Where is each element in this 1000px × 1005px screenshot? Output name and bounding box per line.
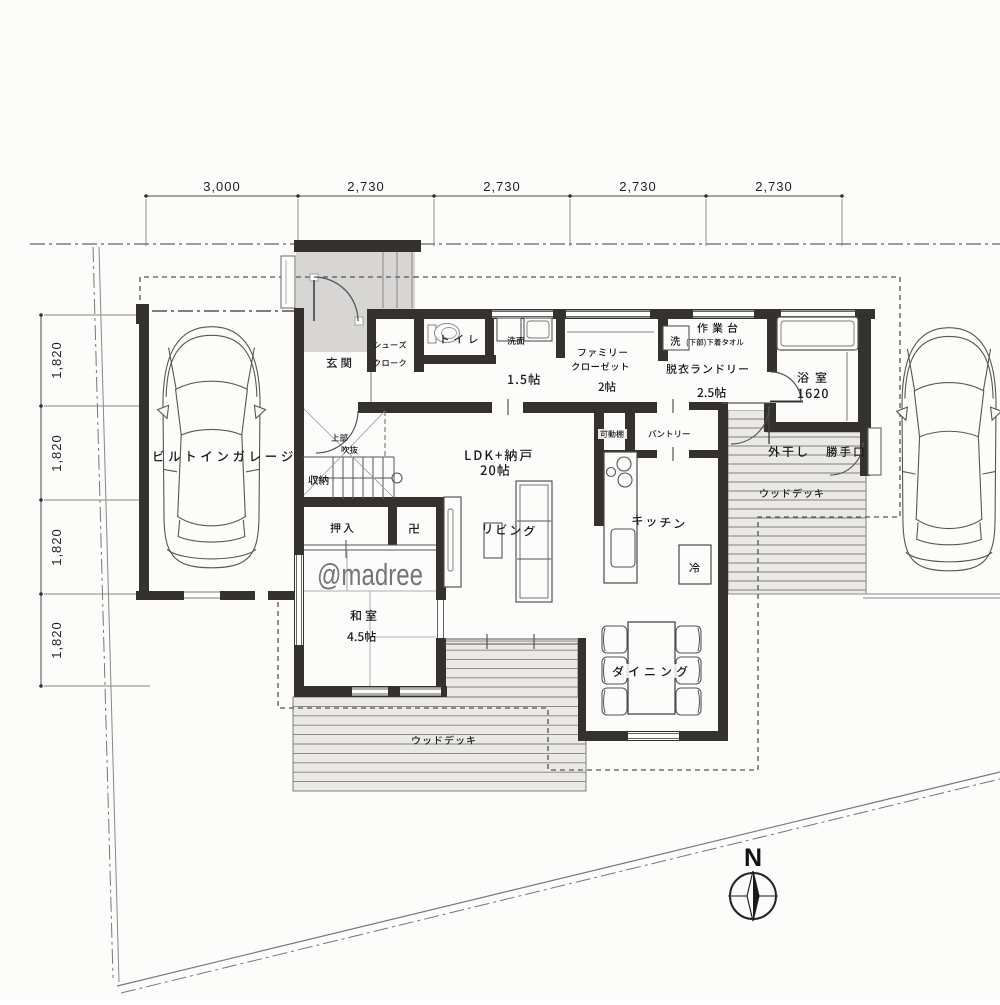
svg-text:1,820: 1,820 <box>49 621 64 659</box>
svg-text:2,730: 2,730 <box>755 179 793 194</box>
svg-text:2,730: 2,730 <box>483 179 521 194</box>
svg-text:2,730: 2,730 <box>347 179 385 194</box>
svg-text:1,820: 1,820 <box>49 528 64 566</box>
svg-text:1,820: 1,820 <box>49 341 64 379</box>
svg-text:2,730: 2,730 <box>619 179 657 194</box>
svg-text:1,820: 1,820 <box>49 434 64 472</box>
svg-text:@madree: @madree <box>317 557 423 592</box>
svg-text:3,000: 3,000 <box>203 179 241 194</box>
svg-text:N: N <box>744 844 762 872</box>
